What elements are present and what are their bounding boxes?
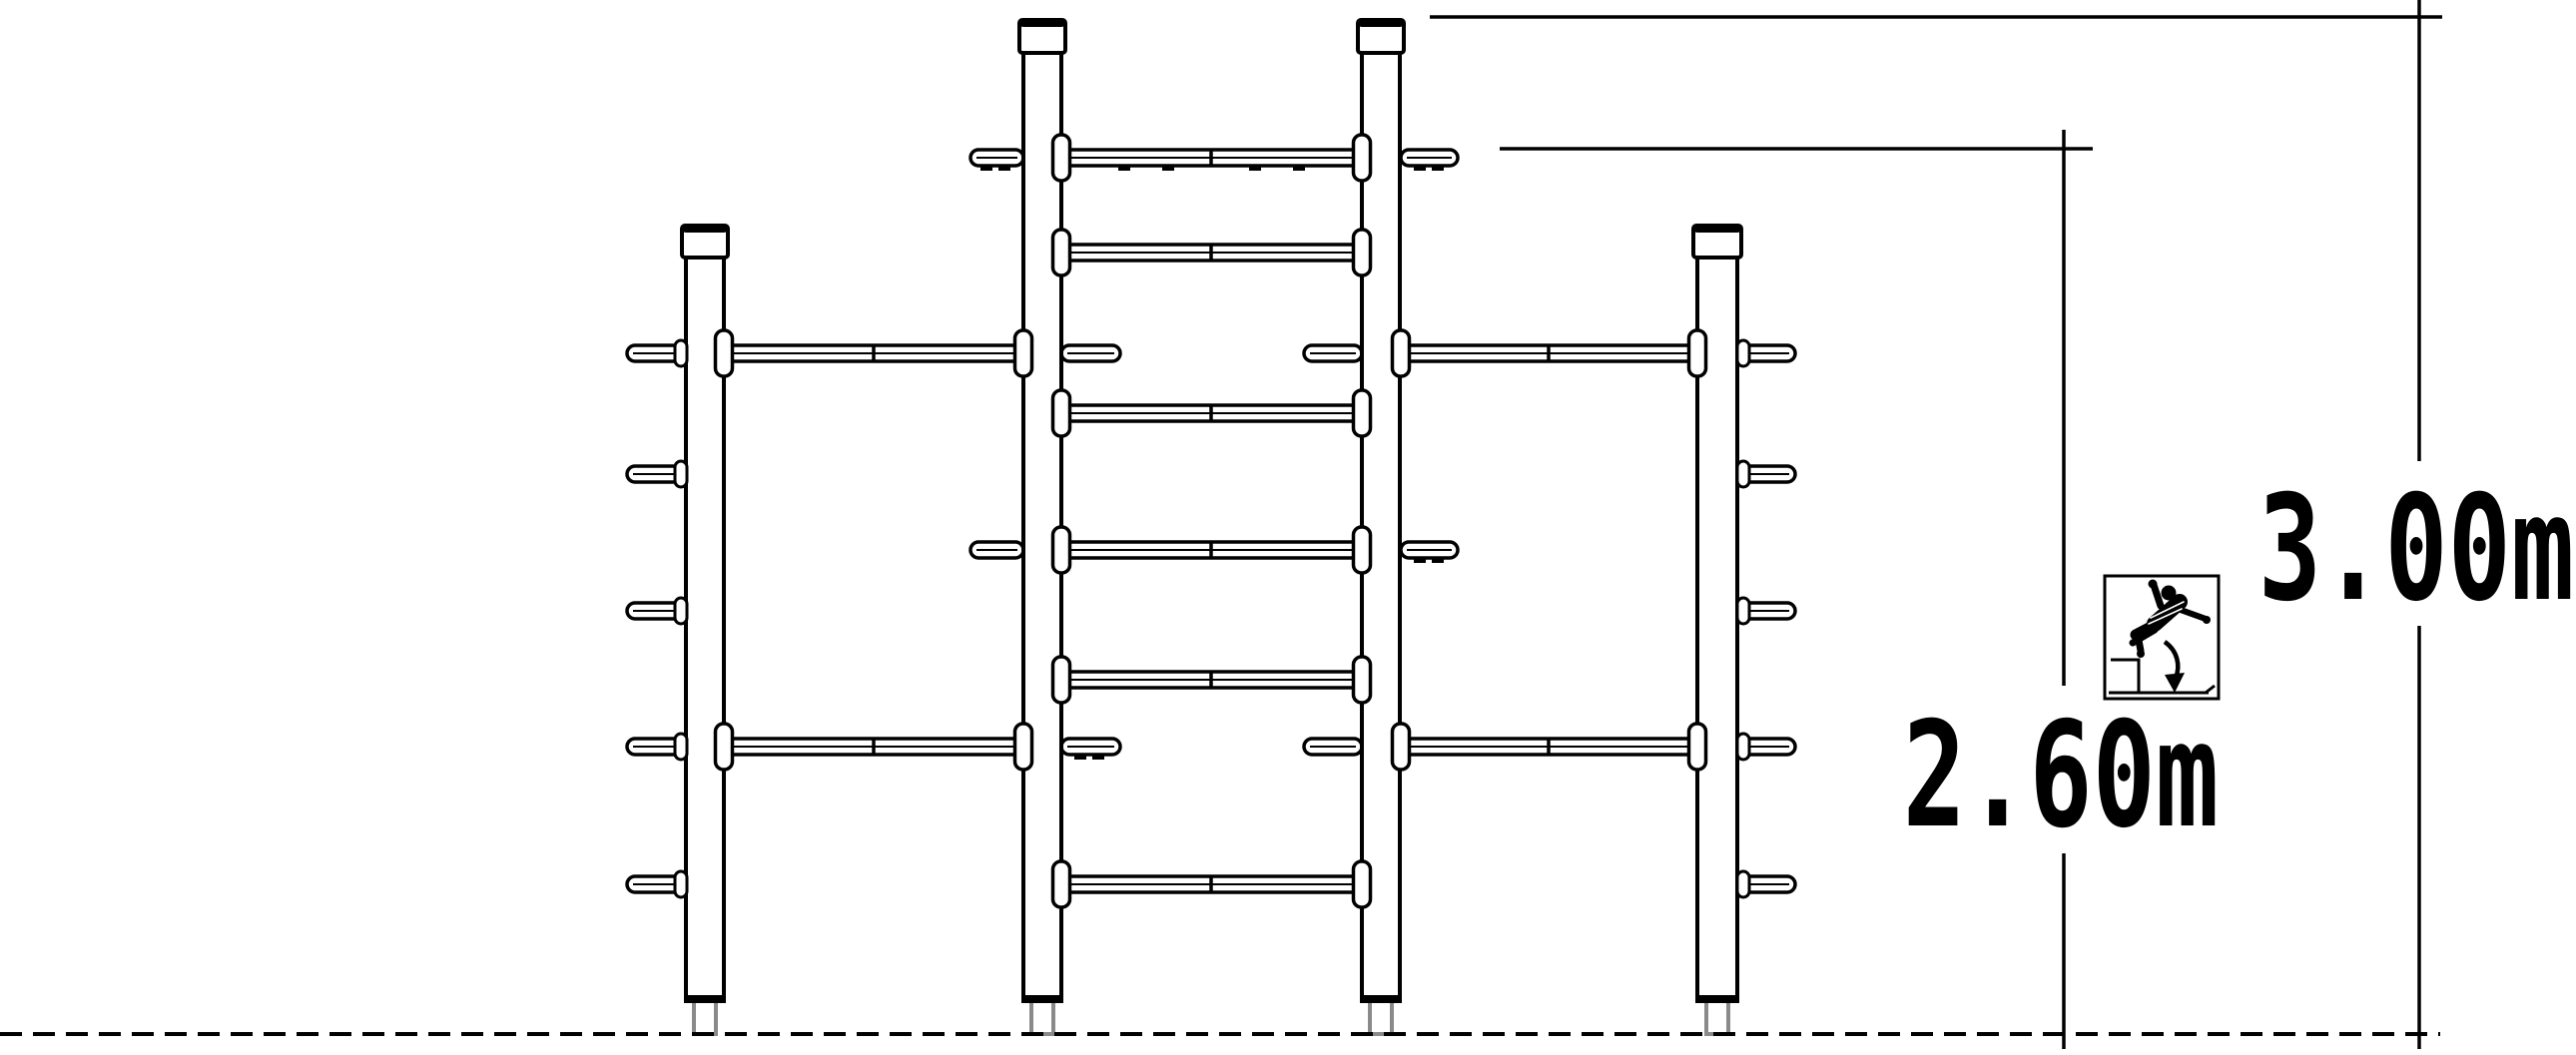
collar-fitting [716,330,733,376]
weld-nub [1432,558,1444,563]
center-left-post-base [1022,995,1062,1001]
collar-fitting [1689,330,1706,376]
weld-nub [1414,166,1426,171]
collar-fitting [1393,330,1410,376]
right-outer-post-base [1696,995,1738,1001]
weld-nub [998,166,1010,171]
fall-height-label: 2.60m [1903,692,2219,861]
stub-sleeve-fitting [675,871,687,897]
weld-nub [1432,166,1444,171]
stub-sleeve-fitting [1737,461,1749,487]
weld-nub [1118,166,1130,171]
total-height-label: 3.00m [2258,465,2574,635]
collar-fitting [1053,135,1070,181]
fall-height-icon [2105,576,2219,699]
collar-fitting [1354,135,1371,181]
collar-fitting [1053,390,1070,436]
stub-sleeve-fitting [1737,734,1749,760]
left-outer-post-cap-top [682,225,728,233]
weld-nub [1162,166,1174,171]
stub-sleeve-fitting [675,340,687,366]
stub-sleeve-fitting [1737,871,1749,897]
left-outer-post-foot [694,1001,716,1034]
weld-nub [1092,755,1104,760]
center-left-post-cap-top [1019,19,1065,27]
weld-nub [1249,166,1261,171]
weld-nub [980,166,992,171]
center-right-post-base [1361,995,1401,1001]
stub-sleeve-fitting [1737,340,1749,366]
collar-fitting [1393,724,1410,770]
stub-sleeve-fitting [675,461,687,487]
collar-fitting [1053,861,1070,907]
right-outer-post-foot [1706,1001,1728,1034]
collar-fitting [1354,390,1371,436]
elevation-drawing: 3.00m 2.60m [0,0,2576,1055]
collar-fitting [1053,527,1070,573]
weld-nub [1293,166,1305,171]
collar-fitting [1015,724,1032,770]
center-right-post-foot [1370,1001,1392,1034]
collar-fitting [1354,657,1371,703]
center-right-post-cap-top [1358,19,1404,27]
weld-nub [1074,755,1086,760]
stub-sleeve-fitting [1737,598,1749,624]
drawing-canvas: 3.00m 2.60m [0,0,2576,1055]
stub-sleeve-fitting [675,598,687,624]
collar-fitting [1689,724,1706,770]
climbing-frame [0,0,2442,1049]
collar-fitting [1354,230,1371,275]
collar-fitting [1015,330,1032,376]
collar-fitting [1053,657,1070,703]
stub-sleeve-fitting [675,734,687,760]
center-left-post-foot [1031,1001,1053,1034]
weld-nub [1414,558,1426,563]
left-outer-post-base [685,995,725,1001]
collar-fitting [1354,861,1371,907]
right-outer-post-cap-top [1693,225,1741,233]
collar-fitting [1053,230,1070,275]
collar-fitting [1354,527,1371,573]
collar-fitting [716,724,733,770]
